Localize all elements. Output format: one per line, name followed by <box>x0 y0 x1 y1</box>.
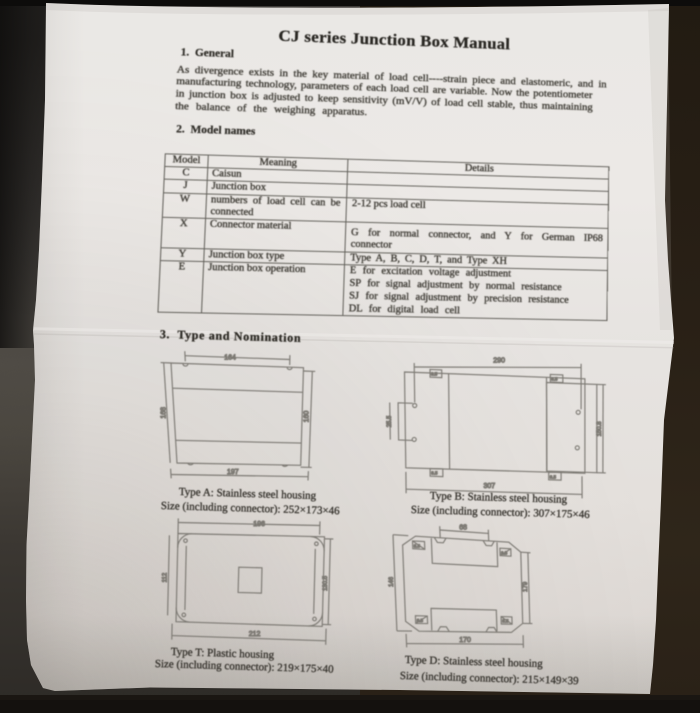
svg-text:8.5: 8.5 <box>431 372 438 377</box>
svg-text:164: 164 <box>224 354 236 361</box>
svg-text:8.5: 8.5 <box>417 618 424 623</box>
svg-text:8.5: 8.5 <box>502 619 509 624</box>
svg-text:212: 212 <box>249 631 261 638</box>
svg-text:160: 160 <box>304 411 311 423</box>
svg-text:307: 307 <box>484 483 496 490</box>
svg-text:8.5: 8.5 <box>550 474 557 479</box>
svg-text:197: 197 <box>227 469 239 476</box>
svg-text:179: 179 <box>523 581 529 592</box>
svg-text:8.5: 8.5 <box>414 543 421 548</box>
svg-text:150.8: 150.8 <box>597 421 603 437</box>
svg-text:112: 112 <box>162 572 168 582</box>
svg-text:8.5: 8.5 <box>551 377 558 382</box>
svg-text:130.5: 130.5 <box>323 575 329 591</box>
svg-text:146: 146 <box>389 576 395 587</box>
svg-text:8.5: 8.5 <box>431 471 438 476</box>
svg-text:25.5: 25.5 <box>387 415 393 427</box>
svg-text:8.5: 8.5 <box>501 550 508 555</box>
svg-text:170: 170 <box>459 637 471 644</box>
svg-text:290: 290 <box>493 358 505 365</box>
svg-text:168: 168 <box>160 407 167 419</box>
svg-text:196: 196 <box>253 521 265 528</box>
svg-text:68: 68 <box>459 525 467 532</box>
